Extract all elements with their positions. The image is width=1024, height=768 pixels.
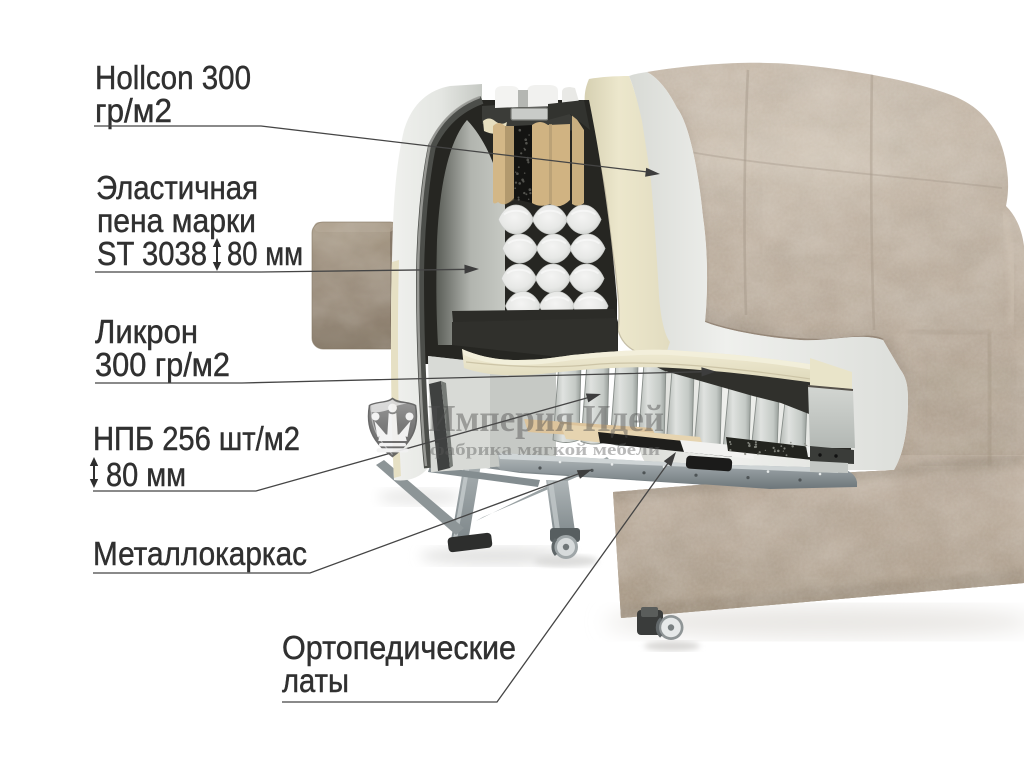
svg-text:80 мм: 80 мм — [227, 235, 303, 272]
svg-text:Империя Идей: Империя Идей — [428, 398, 664, 440]
svg-text:300 гр/м2: 300 гр/м2 — [95, 346, 230, 383]
svg-text:пена марки: пена марки — [97, 202, 256, 239]
svg-text:фабрика мягкой мебели: фабрика мягкой мебели — [430, 440, 661, 459]
svg-text:Эластичная: Эластичная — [96, 169, 258, 206]
svg-text:латы: латы — [282, 662, 349, 699]
svg-text:НПБ 256 шт/м2: НПБ 256 шт/м2 — [93, 420, 300, 457]
svg-text:гр/м2: гр/м2 — [95, 92, 172, 129]
svg-text:Hollcon 300: Hollcon 300 — [95, 59, 251, 96]
svg-text:Металлокаркас: Металлокаркас — [93, 535, 307, 572]
svg-text:ST 3038: ST 3038 — [97, 235, 207, 272]
svg-text:Ликрон: Ликрон — [95, 313, 198, 350]
svg-text:80 мм: 80 мм — [106, 456, 186, 493]
svg-text:Ортопедические: Ортопедические — [282, 629, 516, 666]
